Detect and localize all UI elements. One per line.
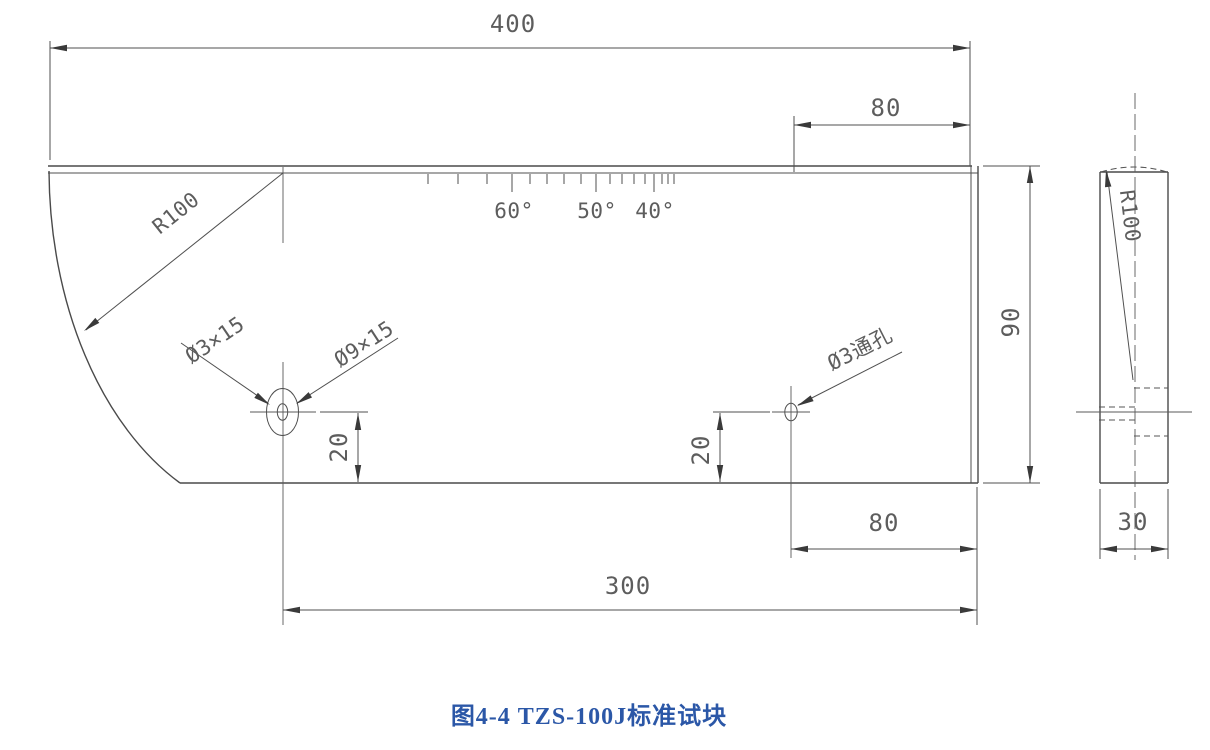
hole-through xyxy=(772,386,810,558)
dim-arrow-left xyxy=(283,607,300,613)
leader-arrow xyxy=(254,393,270,405)
leader-r100-front: R100 xyxy=(84,173,283,331)
leader-hole2: Ø3通孔 xyxy=(797,323,902,406)
dim-arrow-right xyxy=(953,122,970,128)
dim-arrow-right xyxy=(960,546,977,552)
dim-80-top-label: 80 xyxy=(871,94,902,122)
dimension-300: 300 xyxy=(283,572,977,613)
dim-arrow-right xyxy=(953,45,970,51)
dim-300-label: 300 xyxy=(605,572,651,600)
angle-label-60: 60° xyxy=(494,199,533,223)
dimension-30: 30 xyxy=(1100,489,1168,559)
angle-label-50: 50° xyxy=(577,199,616,223)
dimension-90: 90 xyxy=(983,166,1040,483)
front-view: 60° 50° 40° R100 Ø3×15 xyxy=(48,166,978,625)
dim-20-left-label: 20 xyxy=(325,432,353,463)
angle-scale: 60° 50° 40° xyxy=(428,174,675,223)
dim-arrow-up xyxy=(717,413,723,430)
dim-arrow-left xyxy=(50,45,67,51)
dim-arrow-left xyxy=(1100,546,1117,552)
r100-front-label: R100 xyxy=(148,187,204,239)
dim-20-right-label: 20 xyxy=(687,435,715,466)
dimension-400: 400 xyxy=(50,10,970,166)
figure-caption: 图4-4 TZS-100J标准试块 xyxy=(451,703,727,730)
side-top-arc-hidden xyxy=(1101,167,1167,172)
dim-arrow-left xyxy=(791,546,808,552)
figure-page: 60° 50° 40° R100 Ø3×15 xyxy=(0,0,1210,750)
dim-arrow-down xyxy=(355,465,361,482)
dim-80-bottom-label: 80 xyxy=(869,509,900,537)
hole1-small-label: Ø3×15 xyxy=(181,312,249,369)
leader-arrow xyxy=(797,395,814,406)
r100-side-label: R100 xyxy=(1115,188,1145,243)
dim-90-label: 90 xyxy=(997,307,1025,338)
side-view: R100 30 xyxy=(1076,93,1192,560)
leader-hole1-counterbore: Ø9×15 xyxy=(296,316,398,404)
leader-arrow xyxy=(84,318,99,331)
dim-arrow-up xyxy=(355,413,361,430)
dimension-80-top: 80 xyxy=(794,94,970,172)
dim-arrow-down xyxy=(717,465,723,482)
dimension-80-bottom: 80 xyxy=(791,487,977,625)
leader-arrow xyxy=(296,392,312,404)
leader-hole1-small: Ø3×15 xyxy=(181,312,270,405)
dimension-20-left: 20 xyxy=(320,412,368,482)
technical-drawing: 60° 50° 40° R100 Ø3×15 xyxy=(0,0,1210,750)
dim-30-label: 30 xyxy=(1118,508,1149,536)
leader-r100-side: R100 xyxy=(1105,170,1145,380)
hole2-label: Ø3通孔 xyxy=(824,323,897,376)
dim-arrow-down xyxy=(1027,466,1033,483)
dim-arrow-right xyxy=(960,607,977,613)
dim-400-label: 400 xyxy=(490,10,536,38)
dim-arrow-up xyxy=(1027,166,1033,183)
dimension-20-right: 20 xyxy=(687,412,770,482)
dim-arrow-right xyxy=(1151,546,1168,552)
dim-arrow-left xyxy=(794,122,811,128)
angle-label-40: 40° xyxy=(635,199,674,223)
